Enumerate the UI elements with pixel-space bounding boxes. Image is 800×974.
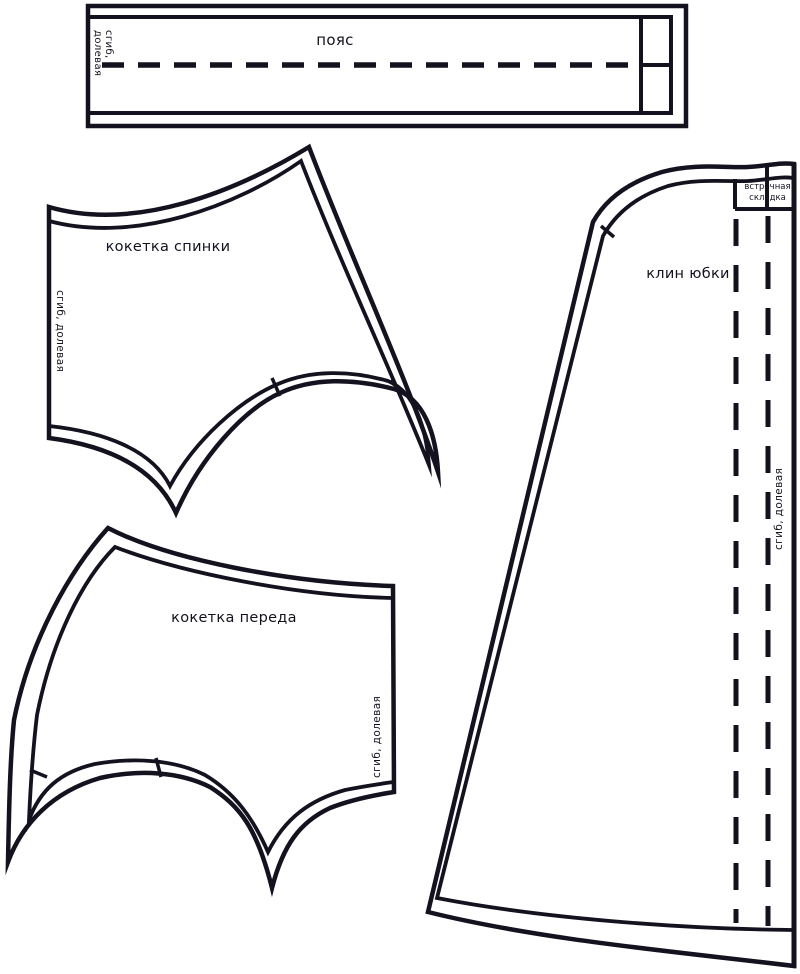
front-yoke-grain-label: сгиб, долевая: [371, 653, 383, 778]
waistband-piece: [88, 6, 686, 126]
skirt-gore-grain-label: сгиб, долевая: [773, 425, 785, 550]
pattern-diagram-canvas: [0, 0, 800, 974]
waistband-grain-label: сгиб, долевая: [92, 30, 114, 76]
sewing-pattern-sheet: пояс сгиб, долевая кокетка спинки сгиб, …: [0, 0, 800, 974]
back-yoke-grain-label: сгиб, долевая: [54, 290, 66, 410]
waistband-label: пояс: [250, 31, 420, 49]
skirt-gore-outline: [428, 163, 794, 966]
back-yoke-piece: [49, 147, 438, 513]
front-yoke-piece: [8, 528, 394, 888]
pleat-label: встречная складка: [739, 182, 796, 203]
skirt-gore-piece: [428, 163, 794, 968]
back-yoke-outline: [49, 147, 438, 513]
back-yoke-label: кокетка спинки: [88, 239, 248, 255]
front-yoke-label: кокетка переда: [154, 610, 314, 626]
skirt-gore-label: клин юбки: [608, 266, 768, 282]
front-yoke-outline: [8, 528, 394, 888]
